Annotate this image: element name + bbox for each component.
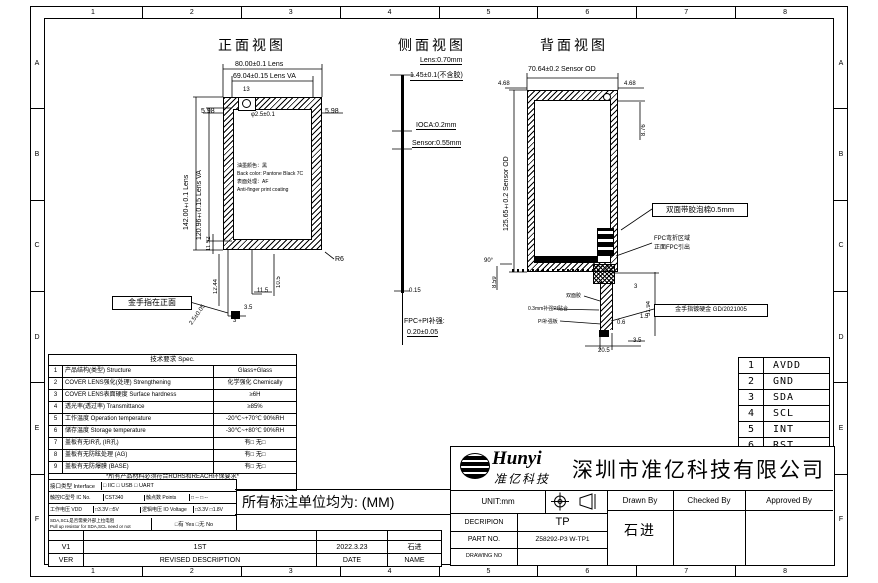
revision-cell xyxy=(317,531,388,540)
spec-sub-table: 接口类型 Interface □ IIC □ USB □ UART 触控IC型号… xyxy=(48,479,237,533)
ruler-col-label: 3 xyxy=(242,6,341,18)
revision-header-date: DATE xyxy=(317,554,388,566)
revision-header-ver: VER xyxy=(49,554,84,566)
front-dim-1244: 12.44 xyxy=(213,272,219,294)
spec-table-row: 6 储存温度 Storage temperature -30℃~+80℃ 90%… xyxy=(49,426,296,438)
back-dim-5194: 51.94 xyxy=(646,292,652,316)
spec-row-name: 盖板有无防眩处理 (AG) xyxy=(63,450,214,461)
description-label: DECRIPION xyxy=(452,514,516,530)
spec-row-value: 有□ 无□ xyxy=(214,450,296,461)
pin-name: INT xyxy=(764,424,794,435)
side-label-fpc1: FPC+PI补强: xyxy=(404,316,445,326)
back-dim-90: 90° xyxy=(484,258,493,264)
spec-row-number: 1 xyxy=(49,366,63,377)
ruler-col-label: 2 xyxy=(143,6,242,18)
spec-row-value: 有□ 无□ xyxy=(214,438,296,449)
pin-name: SDA xyxy=(764,392,794,403)
side-dim-015: 0.15 xyxy=(409,288,421,294)
side-label-oca-text: IOCA:0.2mm xyxy=(416,122,456,130)
pin-name: GND xyxy=(764,376,794,387)
ruler-col-label: 5 xyxy=(440,6,539,18)
ruler-col-label: 7 xyxy=(637,565,736,577)
front-dim-1152: 11.52 xyxy=(206,231,212,251)
ruler-row-label: D xyxy=(30,292,44,383)
pin-name: SCL xyxy=(764,408,794,419)
ruler-col-label: 6 xyxy=(538,565,637,577)
spec-table-title: 技术要求 Spec. xyxy=(49,355,296,366)
drawn-by-value: 石进 xyxy=(608,515,672,545)
spec-row-name: 透光率(透过率) Transmittance xyxy=(63,402,214,413)
pin-number: 3 xyxy=(739,390,764,405)
revision-row: V1 1ST 2022.3.23 石进 xyxy=(49,541,441,554)
spec-table: 技术要求 Spec. 1 产品结构(类型) Structure Glass+Gl… xyxy=(48,354,297,491)
drawing-no-value xyxy=(518,549,607,563)
back-tape-strip xyxy=(512,269,598,272)
front-dim-height-lens: 142.00±0.1 Lens xyxy=(183,125,190,230)
spec-row-value: -30℃~+80℃ 90%RH xyxy=(214,426,296,437)
side-view-title: 侧面视图 xyxy=(398,35,466,55)
ruler-row-label: F xyxy=(834,475,848,565)
first-angle-projection-icon xyxy=(550,492,602,511)
back-dim-top: 70.64±0.2 Sensor OD xyxy=(528,66,596,73)
side-label-fpc2-text: 0.20±0.05 xyxy=(407,329,438,337)
approved-by-value xyxy=(746,515,832,545)
interface-row: 接口类型 Interface □ IIC □ USB □ UART xyxy=(49,480,236,492)
spec-row-value: 有□ 无□ xyxy=(214,462,296,473)
pin-row: 1 AVDD xyxy=(739,358,829,374)
back-stiffener-pad xyxy=(593,264,615,284)
title-block-line xyxy=(607,510,833,511)
back-dim-468-right: 4.68 xyxy=(624,81,636,87)
side-label-fpc2: 0.20±0.05 xyxy=(407,329,438,337)
revision-header-desc: REVISED DESCRIPTION xyxy=(84,554,317,566)
io-label: 逻辑电压 IO Voltage xyxy=(141,506,194,513)
spec-row-number: 8 xyxy=(49,450,63,461)
back-dim-06: 0.6 xyxy=(617,320,625,326)
ruler-col-label: 5 xyxy=(440,565,539,577)
interface-label: 接口类型 Interface xyxy=(49,482,102,490)
revision-desc: 1ST xyxy=(84,541,317,553)
back-dim-15: 1.5 xyxy=(640,314,648,320)
front-dim-115: 11.5 xyxy=(257,288,268,294)
company-logo-text: Hunyi xyxy=(492,448,542,470)
spec-table-row: 8 盖板有无防眩处理 (AG) 有□ 无□ xyxy=(49,450,296,462)
front-note: 油墨颜色：黑 Back color: Pantone Black 7C 表面处理… xyxy=(237,162,311,194)
front-dim-height-va: 120.96±0.15 Lens VA xyxy=(196,130,203,240)
ruler-col-label: 8 xyxy=(736,565,834,577)
side-label-lens-text: Lens:0.70mm xyxy=(420,57,462,65)
drawn-by-label: Drawn By xyxy=(608,491,672,509)
side-label-total: 1.45±0.1(不含胶) xyxy=(410,70,463,81)
side-view-fpc-line xyxy=(402,293,403,345)
ruler-row-label: A xyxy=(30,18,44,109)
description-value: TP xyxy=(518,514,607,530)
part-no-value: Z58292-P3 W-TP1 xyxy=(518,532,607,547)
revision-cell xyxy=(49,531,84,540)
spec-row-value: Glass+Glass xyxy=(214,366,296,377)
part-no-label: PART NO. xyxy=(452,532,516,547)
revision-cell xyxy=(84,531,317,540)
front-view-title: 正面视图 xyxy=(218,35,286,55)
voltage-row: 工作电压 VDD □3.3V □5V 逻辑电压 IO Voltage □3.3V… xyxy=(49,504,236,516)
spec-table-row: 5 工作温度 Operation temperature -20℃~+70℃ 9… xyxy=(49,414,296,426)
spec-row-name: 盖板有无防爆膜 (BASE) xyxy=(63,462,214,473)
back-dim-205: 20.5 xyxy=(598,348,610,354)
front-corner-radius: R6 xyxy=(335,256,344,263)
back-bend-label-1: FPC弯折区域 xyxy=(654,235,690,244)
pin-number: 4 xyxy=(739,406,764,421)
pin-row: 3 SDA xyxy=(739,390,829,406)
back-dim-3: 3 xyxy=(634,284,637,290)
spec-row-name: 储存温度 Storage temperature xyxy=(63,426,214,437)
title-block-line xyxy=(545,490,546,513)
spec-row-name: COVER LENS表面硬度 Surface hardness xyxy=(63,390,214,401)
revision-header-name: NAME xyxy=(388,554,441,566)
side-view-stack-line xyxy=(401,75,404,293)
spec-row-value: 化学强化 Chemically xyxy=(214,378,296,389)
front-hole xyxy=(242,99,251,108)
pin-row: 2 GND xyxy=(739,374,829,390)
pullup-label: SDA,SCL是否需要外部上拉电阻 Pull up resistor for S… xyxy=(49,518,152,531)
ruler-row-label: C xyxy=(30,201,44,292)
ruler-right: ABCDEF xyxy=(834,18,848,565)
ruler-col-label: 8 xyxy=(736,6,834,18)
ruler-col-label: 1 xyxy=(44,6,143,18)
ruler-top: 12345678 xyxy=(44,6,834,18)
points-label: 触点数 Points xyxy=(145,494,190,501)
pin-table: 1 AVDD 2 GND 3 SDA 4 SCL 5 INT 6 RST xyxy=(738,357,830,454)
pin-number: 1 xyxy=(739,358,764,373)
spec-row-number: 2 xyxy=(49,378,63,389)
back-dim-876: 8.76 xyxy=(641,106,647,136)
front-note-line: 油墨颜色：黑 xyxy=(237,162,311,170)
spec-row-name: 盖板有无IR孔 (IR孔) xyxy=(63,438,214,449)
ruler-row-label: B xyxy=(834,109,848,200)
company-logo-subtext: 准亿科技 xyxy=(494,470,550,487)
pin-row: 4 SCL xyxy=(739,406,829,422)
back-bottom-bar xyxy=(534,256,598,263)
front-dim-35: 3.5 xyxy=(244,305,252,311)
divider-line xyxy=(235,489,450,490)
revision-empty-row xyxy=(49,531,441,541)
side-label-lens: Lens:0.70mm xyxy=(420,57,462,65)
pin-row: 5 INT xyxy=(739,422,829,438)
io-value: □3.3V □1.8V xyxy=(194,507,236,513)
spec-table-row: 7 盖板有无IR孔 (IR孔) 有□ 无□ xyxy=(49,438,296,450)
pin-number: 2 xyxy=(739,374,764,389)
revision-date: 2022.3.23 xyxy=(317,541,388,553)
ic-label: 触控IC型号 IC No. xyxy=(49,494,104,501)
front-dim-width-lens: 80.00±0.1 Lens xyxy=(235,61,283,68)
ruler-row-label: C xyxy=(834,201,848,292)
ic-row: 触控IC型号 IC No. CST340 触点数 Points □ -- □ -… xyxy=(49,492,236,504)
vdd-label: 工作电压 VDD xyxy=(49,506,94,513)
ruler-row-label: D xyxy=(834,292,848,383)
front-note-line: Anti-finger print coating xyxy=(237,186,311,194)
points-value: □ -- □ -- xyxy=(190,495,236,501)
spec-row-number: 9 xyxy=(49,462,63,473)
back-label-tape: 双面胶 xyxy=(566,292,581,299)
ruler-row-label: B xyxy=(30,109,44,200)
back-hole xyxy=(603,93,611,101)
revision-cell xyxy=(388,531,441,540)
unit-label: UNIT:mm xyxy=(452,491,544,512)
ruler-left: ABCDEF xyxy=(30,18,44,565)
spec-table-row: 4 透光率(透过率) Transmittance ≥85% xyxy=(49,402,296,414)
back-label-stiffener: PI补强板 xyxy=(538,318,558,325)
back-dim-468-left: 4.68 xyxy=(498,81,510,87)
side-label-oca: IOCA:0.2mm xyxy=(416,122,456,130)
spec-row-number: 6 xyxy=(49,426,63,437)
pin-number: 5 xyxy=(739,422,764,437)
back-dim-35: 3.5 xyxy=(633,338,641,344)
front-dim-105: 10.5 xyxy=(276,270,282,288)
front-dim-width-va: 69.04±0.15 Lens VA xyxy=(233,73,296,80)
spec-row-value: -20℃~+70℃ 90%RH xyxy=(214,414,296,425)
front-hole-label: φ2.5±0.1 xyxy=(251,112,275,118)
ruler-row-label: F xyxy=(30,475,44,565)
spec-row-name: 产品结构(类型) Structure xyxy=(63,366,214,377)
back-dim-859: 8.59 xyxy=(492,268,498,288)
back-view-title: 背面视图 xyxy=(540,35,608,55)
back-bend-label: FPC弯折区域 正面FPC引出 xyxy=(654,235,690,253)
ruler-col-label: 4 xyxy=(341,6,440,18)
back-connector-block xyxy=(597,228,614,256)
company-logo-icon xyxy=(460,453,490,479)
pin-name: AVDD xyxy=(764,360,801,371)
ruler-row-label: E xyxy=(30,383,44,474)
drawing-no-label: DRAWING NO xyxy=(452,549,516,563)
side-label-total-text: 1.45±0.1(不含胶) xyxy=(410,70,463,81)
back-foam-callout: 双面带胶泡棉0.5mm xyxy=(652,203,748,217)
ruler-col-label: 7 xyxy=(637,6,736,18)
spec-row-number: 5 xyxy=(49,414,63,425)
ruler-row-label: A xyxy=(834,18,848,109)
side-label-sensor: Sensor:0.55mm xyxy=(412,140,461,148)
units-note: 所有标注单位均为: (MM) xyxy=(242,492,394,512)
revision-ver: V1 xyxy=(49,541,84,553)
back-dim-height: 125.65±0.2 Sensor OD xyxy=(503,131,510,231)
spec-table-row: 9 盖板有无防爆膜 (BASE) 有□ 无□ xyxy=(49,462,296,474)
drawing-sheet: 12345678 12345678 ABCDEF ABCDEF 正面视图 80.… xyxy=(0,0,878,583)
spec-row-name: 工作温度 Operation temperature xyxy=(63,414,214,425)
spec-row-number: 7 xyxy=(49,438,63,449)
spec-row-number: 3 xyxy=(49,390,63,401)
back-fpc-tail xyxy=(600,282,613,330)
divider-line xyxy=(235,514,450,515)
spec-row-name: COVER LENS强化(处理) Strengthening xyxy=(63,378,214,389)
revision-name: 石进 xyxy=(388,541,441,553)
revision-table: V1 1ST 2022.3.23 石进 VER REVISED DESCRIPT… xyxy=(48,530,442,567)
spec-table-row: 3 COVER LENS表面硬度 Surface hardness ≥6H xyxy=(49,390,296,402)
back-tail-gold-tip xyxy=(599,330,609,337)
interface-value: □ IIC □ USB □ UART xyxy=(102,483,236,489)
front-gold-finger-callout: 金手指在正面 xyxy=(112,296,192,310)
vdd-value: □3.3V □5V xyxy=(94,507,141,513)
front-dim-598-right: 5.98 xyxy=(325,108,339,115)
approved-by-label: Approved By xyxy=(746,491,832,509)
ic-value: CST340 xyxy=(104,495,145,501)
spec-table-row: 1 产品结构(类型) Structure Glass+Glass xyxy=(49,366,296,378)
spec-table-row: 2 COVER LENS强化(处理) Strengthening 化学强化 Ch… xyxy=(49,378,296,390)
pullup-value: □有 Yes □无 No xyxy=(152,520,236,528)
checked-by-value xyxy=(674,515,744,545)
front-note-line: 表面处理：AF xyxy=(237,178,311,186)
spec-row-value: ≥85% xyxy=(214,402,296,413)
front-dim-598-left: 5.98 xyxy=(201,108,215,115)
back-label-pi: 0.3mm补强PI贴合 xyxy=(528,305,568,312)
back-bend-label-2: 正面FPC引出 xyxy=(654,244,690,253)
front-dim-13: 13 xyxy=(243,87,250,93)
revision-header-row: VER REVISED DESCRIPTION DATE NAME xyxy=(49,554,441,566)
front-note-line: Back color: Pantone Black 7C xyxy=(237,170,311,178)
spec-row-number: 4 xyxy=(49,402,63,413)
ruler-col-label: 6 xyxy=(538,6,637,18)
checked-by-label: Checked By xyxy=(674,491,744,509)
side-label-sensor-text: Sensor:0.55mm xyxy=(412,140,461,148)
company-name: 深圳市准亿科技有限公司 xyxy=(572,454,825,484)
back-gold-callout: 金手指镀硬金 GD/2021005 xyxy=(654,304,768,317)
spec-row-value: ≥6H xyxy=(214,390,296,401)
ruler-row-label: E xyxy=(834,383,848,474)
front-dim-3: 3 xyxy=(233,318,236,324)
